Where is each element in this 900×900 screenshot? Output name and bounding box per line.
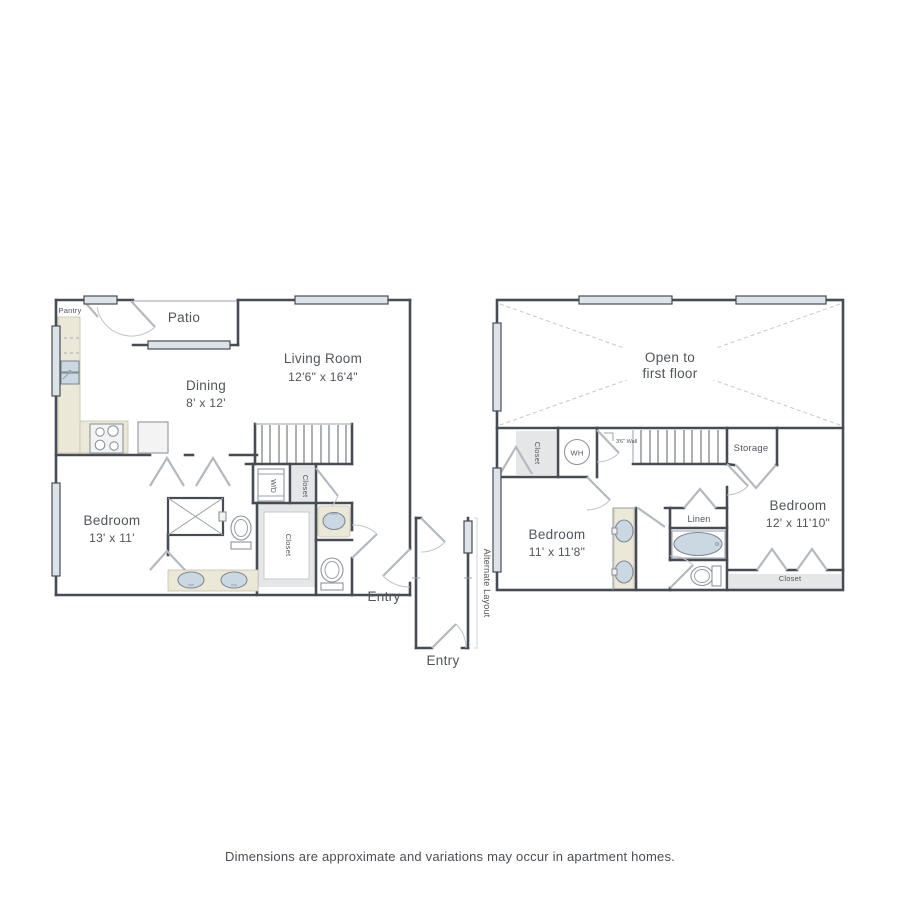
label-bedroom2-closet: Closet [779, 574, 802, 583]
floorplan-canvas: Pantry Patio Dining 8' x 12' Living Room… [0, 0, 900, 900]
powder-vanity [318, 506, 350, 537]
label-walkin-closet: Closet [284, 534, 293, 557]
window [736, 296, 826, 304]
label-living-room-dims: 12'6" x 16'4" [288, 370, 358, 384]
label-bedroom1: Bedroom [84, 513, 141, 528]
window [52, 483, 60, 576]
water-heater: WH [565, 440, 590, 465]
disclaimer-text: Dimensions are approximate and variation… [0, 849, 900, 864]
shower-stall [168, 498, 226, 535]
label-wd: W/D [269, 479, 276, 493]
window [464, 521, 472, 553]
patio-door [97, 301, 155, 336]
label-linen: Linen [687, 514, 710, 524]
label-bedroom-right-dims: 12' x 11'10" [766, 516, 830, 530]
alternate-layout-bracket [474, 518, 477, 648]
label-bedroom1-dims: 13' x 11' [89, 531, 135, 545]
floor2-bedroom-right-door [727, 464, 748, 495]
powder-toilet [321, 558, 343, 590]
floor2-stairs [633, 430, 718, 463]
floor1-kitchen [58, 317, 168, 453]
label-living-room: Living Room [284, 351, 362, 366]
kitchen-counter-left [58, 317, 80, 453]
floor2-plan: 3'6" Wall WH [493, 296, 843, 590]
label-alternate-layout: Alternate Layout [482, 549, 492, 618]
window [52, 326, 60, 396]
vestibule-entry-door [432, 624, 466, 648]
alternate-entry-vestibule: Alternate Layout Entry [412, 518, 492, 668]
ensuite-toilet [231, 516, 251, 549]
bedroom1-doors [150, 458, 230, 486]
label-storage: Storage [734, 443, 769, 454]
label-open-below-1: Open to [645, 350, 695, 365]
window [295, 296, 388, 304]
label-entry-alternate: Entry [426, 653, 459, 668]
label-entry-floor1: Entry [367, 589, 400, 604]
label-upper-closet: Closet [533, 442, 542, 465]
label-wall-note: 3'6" Wall [616, 439, 637, 445]
label-patio: Patio [168, 310, 200, 325]
window [493, 323, 501, 411]
label-bedroom-left: Bedroom [529, 527, 586, 542]
vestibule-top-door [421, 518, 445, 552]
floorplan-page: Pantry Patio Dining 8' x 12' Living Room… [0, 0, 900, 900]
floor2-hall-double-door [684, 489, 716, 508]
label-hall-closet: Closet [301, 475, 310, 498]
storage-doors [736, 465, 776, 488]
kitchen-sink [61, 361, 79, 384]
window [84, 296, 117, 304]
floor1-plan: Pantry Patio Dining 8' x 12' Living Room… [52, 296, 410, 604]
label-bedroom-right: Bedroom [770, 498, 827, 513]
label-open-below-2: first floor [642, 366, 697, 381]
patio-slider-window [148, 341, 230, 349]
wh-door [597, 430, 619, 462]
label-dining-dims: 8' x 12' [186, 396, 226, 410]
label-wh: WH [571, 449, 584, 458]
floor2-bedroom-left-door [587, 477, 610, 510]
label-pantry: Pantry [59, 306, 82, 315]
window [493, 468, 501, 572]
label-bedroom-left-dims: 11' x 11'8" [529, 545, 585, 559]
bedroom2-closet-doors [757, 549, 827, 570]
bathtub [672, 531, 725, 558]
floor2-toilet [691, 566, 721, 586]
kitchen-stove [90, 424, 123, 453]
window [579, 296, 672, 304]
label-dining: Dining [186, 378, 226, 393]
ensuite-vanity [168, 570, 258, 591]
floor1-stairs [255, 424, 352, 463]
powder-door [352, 525, 377, 558]
kitchen-refrigerator [138, 422, 168, 453]
floor1-entry-door [383, 549, 410, 587]
floor2-bath-door [638, 508, 665, 527]
